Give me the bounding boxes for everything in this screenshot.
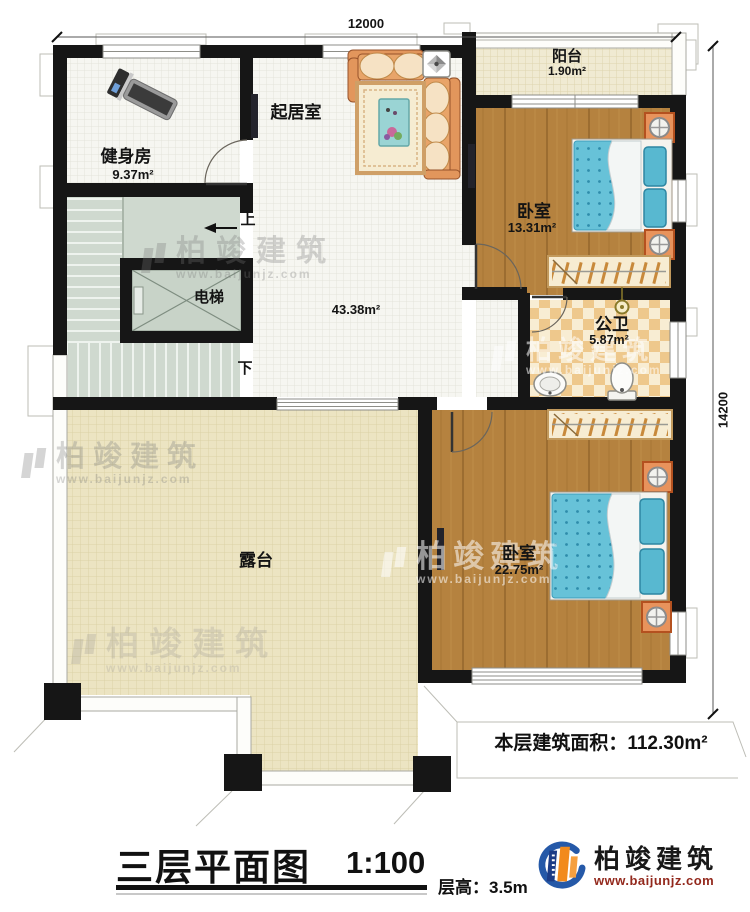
title-underline — [116, 885, 427, 890]
floor-plan-page: 柏竣建筑 www.baijunjz.com 柏竣建筑 www.baijunjz.… — [0, 0, 750, 912]
bathroom-area: 5.87m² — [589, 334, 629, 347]
stairs-down-label: 下 — [237, 361, 252, 376]
floor-height-label: 层高：3.5m — [438, 873, 528, 898]
bedroom1-label: 卧室 — [517, 203, 551, 220]
bedroom2-area: 22.75m² — [495, 563, 543, 576]
living-room-label: 起居室 — [271, 104, 322, 121]
bedroom2-label: 卧室 — [502, 545, 536, 562]
company-website: www.baijunjz.com — [594, 874, 718, 889]
plan-title: 三层平面图 — [116, 837, 311, 891]
elevator-label: 电梯 — [194, 290, 224, 305]
living-room-area: 43.38m² — [332, 303, 380, 316]
wardrobe-1 — [548, 256, 670, 287]
company-logo: 柏竣建筑 www.baijunjz.com — [536, 839, 718, 895]
gym-area: 9.37m² — [112, 168, 153, 181]
elevator-cabin — [132, 270, 241, 331]
bathroom-label: 公卫 — [595, 316, 629, 333]
gym-label: 健身房 — [101, 148, 152, 165]
total-floor-area: 本层建筑面积：112.30m² — [494, 728, 707, 755]
balcony-area: 1.90m² — [548, 65, 586, 77]
company-name: 柏竣建筑 — [594, 845, 718, 874]
stairs-up-label: 上 — [240, 212, 255, 227]
plan-scale: 1:100 — [346, 845, 425, 881]
coffee-table — [379, 99, 409, 146]
dimension-right: 14200 — [717, 392, 730, 428]
floor-plan-drawing — [0, 0, 750, 912]
corner-lamp-table — [423, 51, 450, 77]
dimension-top: 12000 — [348, 17, 384, 30]
company-logo-icon — [536, 839, 586, 895]
balcony-label: 阳台 — [552, 49, 582, 64]
bedroom1-area: 13.31m² — [508, 221, 556, 234]
wardrobe-2 — [548, 410, 672, 439]
terrace-label: 露台 — [239, 552, 273, 569]
title-underline-2 — [116, 893, 427, 895]
